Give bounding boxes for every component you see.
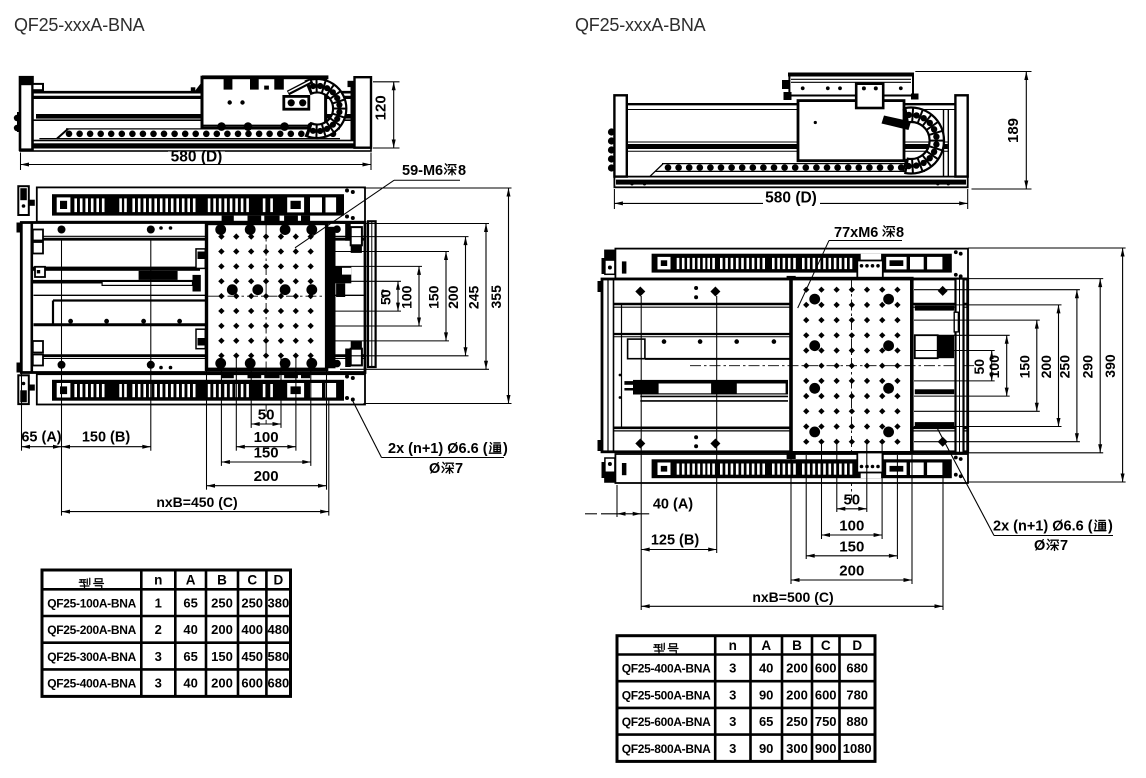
svg-text:390: 390 (1102, 354, 1118, 378)
svg-text:65: 65 (183, 649, 197, 664)
svg-text:90: 90 (759, 741, 773, 756)
svg-text:150: 150 (254, 445, 279, 462)
svg-text:40: 40 (183, 622, 197, 637)
svg-text:200: 200 (211, 622, 233, 637)
svg-text:50: 50 (378, 289, 394, 305)
svg-text:QF25-100A-BNA: QF25-100A-BNA (47, 596, 136, 610)
svg-text:580 (D): 580 (D) (765, 190, 817, 207)
svg-text:600: 600 (815, 687, 837, 702)
svg-text:Ø: Ø (429, 461, 440, 477)
svg-text:50: 50 (843, 491, 860, 508)
svg-text:nxB=500 (C): nxB=500 (C) (752, 589, 833, 605)
svg-text:150: 150 (839, 538, 864, 555)
svg-text:2x (n+1) Ø6.6 (: 2x (n+1) Ø6.6 ( (993, 519, 1093, 535)
svg-text:250: 250 (241, 595, 263, 610)
svg-text:D: D (852, 638, 862, 653)
svg-text:200: 200 (839, 563, 864, 580)
svg-text:77xM6: 77xM6 (834, 225, 878, 241)
svg-text:90: 90 (759, 687, 773, 702)
svg-text:680: 680 (846, 661, 868, 676)
svg-text:1: 1 (155, 595, 162, 610)
svg-text:A: A (186, 573, 196, 588)
svg-text:QF25-200A-BNA: QF25-200A-BNA (47, 623, 136, 637)
svg-text:100: 100 (399, 285, 415, 309)
svg-text:3: 3 (155, 676, 162, 691)
svg-text:65 (A): 65 (A) (21, 430, 61, 446)
svg-text:QF25-400A-BNA: QF25-400A-BNA (47, 677, 136, 691)
svg-text:355: 355 (488, 285, 504, 309)
svg-text:250: 250 (211, 595, 233, 610)
svg-text:189: 189 (1005, 118, 1022, 143)
svg-text:n: n (729, 638, 737, 653)
svg-text:1080: 1080 (843, 741, 872, 756)
svg-text:450: 450 (241, 649, 263, 664)
svg-text:59-M6: 59-M6 (402, 163, 443, 179)
svg-text:600: 600 (815, 661, 837, 676)
svg-text:A: A (761, 638, 771, 653)
svg-text:200: 200 (211, 676, 233, 691)
svg-text:200: 200 (254, 468, 279, 485)
svg-text:100: 100 (839, 518, 864, 535)
svg-text:200: 200 (786, 687, 808, 702)
svg-text:2: 2 (155, 622, 162, 637)
svg-text:): ) (1108, 519, 1113, 535)
svg-text:40: 40 (759, 661, 773, 676)
svg-text:3: 3 (729, 741, 736, 756)
svg-text:7: 7 (455, 461, 463, 477)
svg-text:2x (n+1) Ø6.6 (: 2x (n+1) Ø6.6 ( (388, 441, 488, 457)
svg-text:): ) (503, 441, 508, 457)
svg-text:B: B (217, 573, 227, 588)
svg-text:3: 3 (729, 661, 736, 676)
svg-text:150: 150 (1016, 355, 1032, 379)
svg-text:QF25-300A-BNA: QF25-300A-BNA (47, 650, 136, 664)
svg-text:3: 3 (729, 714, 736, 729)
svg-text:480: 480 (268, 622, 290, 637)
svg-text:50: 50 (971, 359, 987, 375)
svg-text:200: 200 (786, 661, 808, 676)
svg-text:8: 8 (458, 163, 466, 179)
svg-text:880: 880 (846, 714, 868, 729)
svg-text:QF25-xxxA-BNA: QF25-xxxA-BNA (14, 15, 145, 35)
svg-text:680: 680 (268, 676, 290, 691)
svg-text:8: 8 (896, 225, 904, 241)
svg-text:nxB=450 (C): nxB=450 (C) (156, 494, 237, 510)
svg-text:250: 250 (786, 714, 808, 729)
svg-text:380: 380 (268, 595, 290, 610)
svg-text:150 (B): 150 (B) (82, 430, 131, 446)
svg-text:750: 750 (815, 714, 837, 729)
svg-text:QF25-600A-BNA: QF25-600A-BNA (622, 715, 711, 729)
svg-text:C: C (821, 638, 831, 653)
svg-text:QF25-400A-BNA: QF25-400A-BNA (622, 662, 711, 676)
svg-text:125 (B): 125 (B) (651, 533, 700, 549)
svg-text:65: 65 (183, 595, 197, 610)
svg-text:QF25-500A-BNA: QF25-500A-BNA (622, 688, 711, 702)
svg-text:50: 50 (258, 407, 275, 424)
svg-text:Ø: Ø (1034, 538, 1045, 554)
svg-text:290: 290 (1080, 355, 1096, 379)
svg-text:120: 120 (373, 95, 390, 120)
svg-text:3: 3 (155, 649, 162, 664)
svg-text:900: 900 (815, 741, 837, 756)
svg-text:250: 250 (1056, 355, 1072, 379)
svg-text:400: 400 (241, 622, 263, 637)
svg-text:C: C (247, 573, 257, 588)
svg-text:n: n (154, 573, 162, 588)
svg-text:580 (D): 580 (D) (171, 149, 223, 166)
svg-text:245: 245 (466, 286, 482, 310)
svg-text:200: 200 (1038, 355, 1054, 379)
svg-text:65: 65 (759, 714, 773, 729)
svg-text:600: 600 (241, 676, 263, 691)
svg-text:40: 40 (183, 676, 197, 691)
svg-text:100: 100 (986, 355, 1002, 379)
svg-text:B: B (792, 638, 802, 653)
svg-text:3: 3 (729, 687, 736, 702)
svg-text:QF25-xxxA-BNA: QF25-xxxA-BNA (575, 15, 706, 35)
svg-text:QF25-800A-BNA: QF25-800A-BNA (622, 742, 711, 756)
svg-text:200: 200 (445, 285, 461, 309)
svg-text:150: 150 (426, 285, 442, 309)
svg-text:150: 150 (211, 649, 233, 664)
svg-text:40 (A): 40 (A) (653, 497, 693, 513)
svg-text:780: 780 (846, 687, 868, 702)
svg-text:D: D (274, 573, 284, 588)
svg-text:300: 300 (786, 741, 808, 756)
svg-text:580: 580 (268, 649, 290, 664)
svg-text:7: 7 (1060, 538, 1068, 554)
